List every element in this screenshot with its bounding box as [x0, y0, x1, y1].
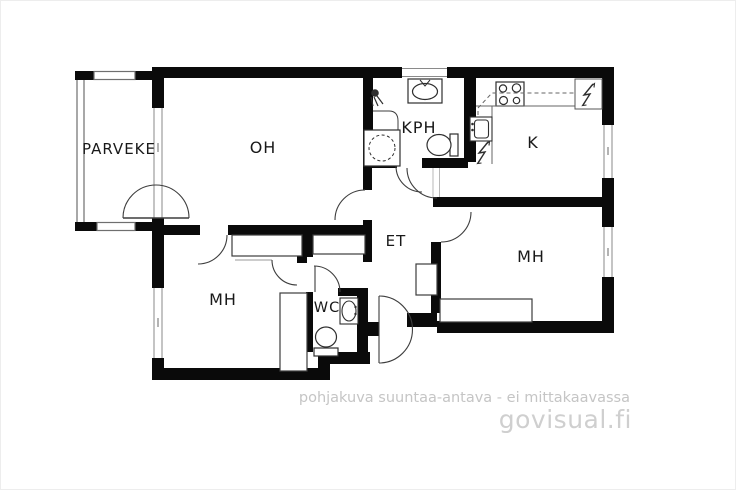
floor-plan-page: PARVEKE OH KPH K ET MH MH WC pohjakuva s…: [0, 0, 736, 490]
cabinet-et: [416, 264, 437, 295]
stove-icon: [496, 82, 524, 106]
kitchen-window: [602, 125, 614, 178]
wall-top: [152, 67, 614, 78]
room-label-kph: KPH: [401, 118, 436, 137]
bathroom-sink-icon: [408, 79, 442, 103]
balcony-rail-top-stub: [135, 71, 152, 80]
burner-icon: [512, 84, 520, 92]
kph-toilet-icon: [427, 134, 458, 156]
balcony-rail-corner-tl: [75, 71, 94, 80]
kitchen-sink-icon: [470, 117, 492, 141]
mh-left-window: [152, 288, 164, 358]
room-label-wc: WC: [314, 300, 340, 316]
burner-icon: [499, 85, 506, 92]
closet-mh-right: [440, 299, 532, 322]
balcony-wall-window: [152, 108, 164, 218]
wall-oh-mh-right: [228, 225, 372, 235]
balcony-rail-top-window: [94, 72, 135, 80]
wall-wc-east: [357, 288, 368, 364]
wc-toilet-icon: [314, 327, 338, 356]
room-label-oh: OH: [250, 138, 277, 157]
balcony-rail-bottom-stub: [135, 222, 152, 231]
closet-oh-mh-left: [232, 235, 302, 256]
room-label-mh-left: MH: [209, 290, 237, 309]
burner-icon: [500, 97, 508, 105]
wall-right-middle: [602, 178, 614, 227]
wall-oh-mh-left: [152, 225, 200, 235]
wall-entry-left: [368, 322, 379, 336]
floor-plan-canvas: PARVEKE OH KPH K ET MH MH WC pohjakuva s…: [0, 0, 736, 490]
wc-sink-icon: [340, 298, 358, 324]
mh-right-window: [602, 227, 614, 277]
disclaimer-text: pohjakuva suuntaa-antava - ei mittakaava…: [299, 390, 630, 406]
wall-closet-divider: [302, 225, 313, 257]
room-label-mh-right: MH: [517, 247, 545, 266]
washing-machine-icon: [364, 130, 400, 166]
wall-left-upper: [152, 67, 164, 108]
closet-mh-left-tall: [280, 293, 307, 371]
wall-right-upper: [602, 67, 614, 125]
room-label-et: ET: [386, 232, 407, 250]
kph-window: [402, 67, 447, 78]
room-label-parveke: PARVEKE: [82, 140, 156, 158]
burner-icon: [513, 97, 519, 103]
wall-bottom-right: [437, 321, 614, 333]
wall-vestibule-stub: [297, 256, 307, 263]
balcony-rail-corner-bl: [75, 222, 97, 231]
brand-watermark: govisual.fi: [499, 405, 632, 434]
room-label-k: K: [527, 133, 539, 152]
balcony-rail-bottom-window: [97, 223, 135, 231]
wall-mh-right-top: [433, 197, 602, 207]
closet-oh-mh-right: [313, 235, 365, 254]
wall-wc-north: [338, 288, 357, 296]
wall-kph-south-right: [422, 158, 468, 168]
